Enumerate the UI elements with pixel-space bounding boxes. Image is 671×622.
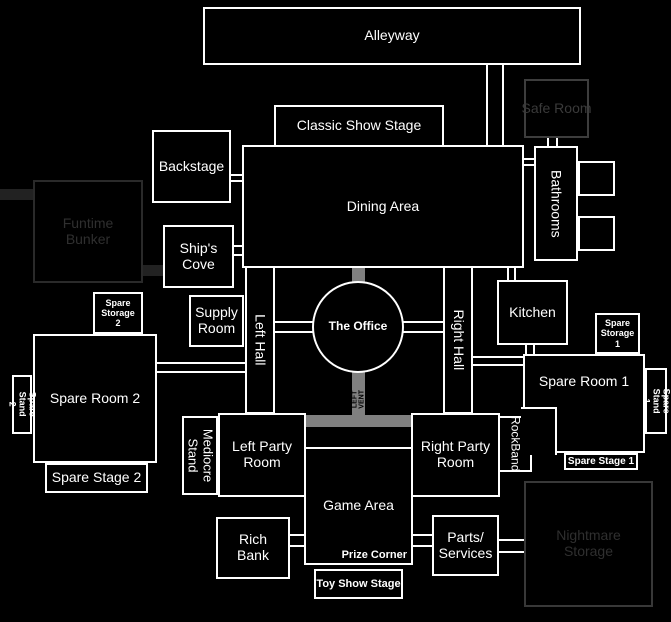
room-supply-room: Supply Room [189, 295, 244, 347]
room-mediocre-stand: Mediocre Stand [182, 416, 218, 495]
righthall-spareroom1-doorway-line [473, 356, 523, 358]
room-spare-stage-1: Spare Stage 1 [564, 453, 638, 470]
room-right-party-room: Right Party Room [411, 413, 500, 497]
spare-room-1-notch [521, 407, 557, 455]
room-rich-bank: Rich Bank [216, 517, 290, 579]
room-bathrooms: Bathrooms [534, 146, 578, 261]
parts-services-right-doorway-line [497, 551, 524, 553]
bathroom-stall [578, 161, 615, 196]
room-dining-area: Dining Area [242, 145, 524, 268]
room-toy-show-stage: Toy Show Stage [314, 569, 403, 599]
room-kitchen: Kitchen [497, 280, 568, 345]
room-left-party-room: Left Party Room [218, 413, 306, 497]
corridor-right-hall: Right Hall [443, 266, 473, 414]
lefthall-spareroom2-doorway-line [157, 362, 245, 364]
bathroom-stall [578, 216, 615, 251]
funtime-bunker-right-connector [141, 265, 165, 276]
room-game-area: Game Area Prize Corner [304, 447, 413, 565]
horizontal-vent [306, 415, 411, 427]
parts-services-left-doorway-line [411, 534, 432, 536]
room-backstage: Backstage [152, 130, 231, 203]
alleyway-corridor-line [502, 65, 504, 145]
room-spare-storage-2: Spare Storage 2 [93, 292, 143, 334]
room-ships-cove: Ship's Cove [163, 225, 234, 288]
room-classic-show-stage: Classic Show Stage [274, 105, 444, 147]
alleyway-corridor-line [486, 65, 488, 145]
left-vent-label: LEFT VENT [344, 384, 373, 414]
parts-services-right-doorway-line [497, 539, 524, 541]
office-right-doorway-line [402, 331, 444, 333]
funtime-bunker-left-connector [0, 189, 35, 200]
righthall-spareroom1-doorway-line [473, 364, 523, 366]
room-alleyway: Alleyway [203, 7, 581, 65]
room-spare-room-2: Spare Room 2 [33, 334, 157, 463]
pizzeria-floor-map: LEFT VENT Alleyway Classic Show Stage Sa… [0, 0, 671, 622]
office-left-doorway-line [274, 321, 314, 323]
prize-corner-label: Prize Corner [342, 549, 407, 561]
room-spare-stage-2: Spare Stage 2 [45, 463, 148, 493]
office-left-doorway-line [274, 331, 314, 333]
room-funtime-bunker: Funtime Bunker [33, 180, 143, 283]
room-safe-room: Safe Room [524, 79, 589, 138]
corridor-left-hall: Left Hall [245, 266, 275, 414]
room-nightmare-storage: Nightmare Storage [524, 481, 653, 607]
room-the-office: The Office [312, 281, 404, 373]
room-spare-storage-1: Spare Storage 1 [595, 313, 640, 354]
office-right-doorway-line [402, 321, 444, 323]
parts-services-left-doorway-line [411, 545, 432, 547]
lefthall-spareroom2-doorway-line [157, 371, 245, 373]
room-spare-stand-1: Spare Stand 1 [645, 368, 667, 434]
room-spare-stand-2: Spare Stand 2 [12, 375, 32, 434]
room-parts-services: Parts/ Services [432, 515, 499, 576]
